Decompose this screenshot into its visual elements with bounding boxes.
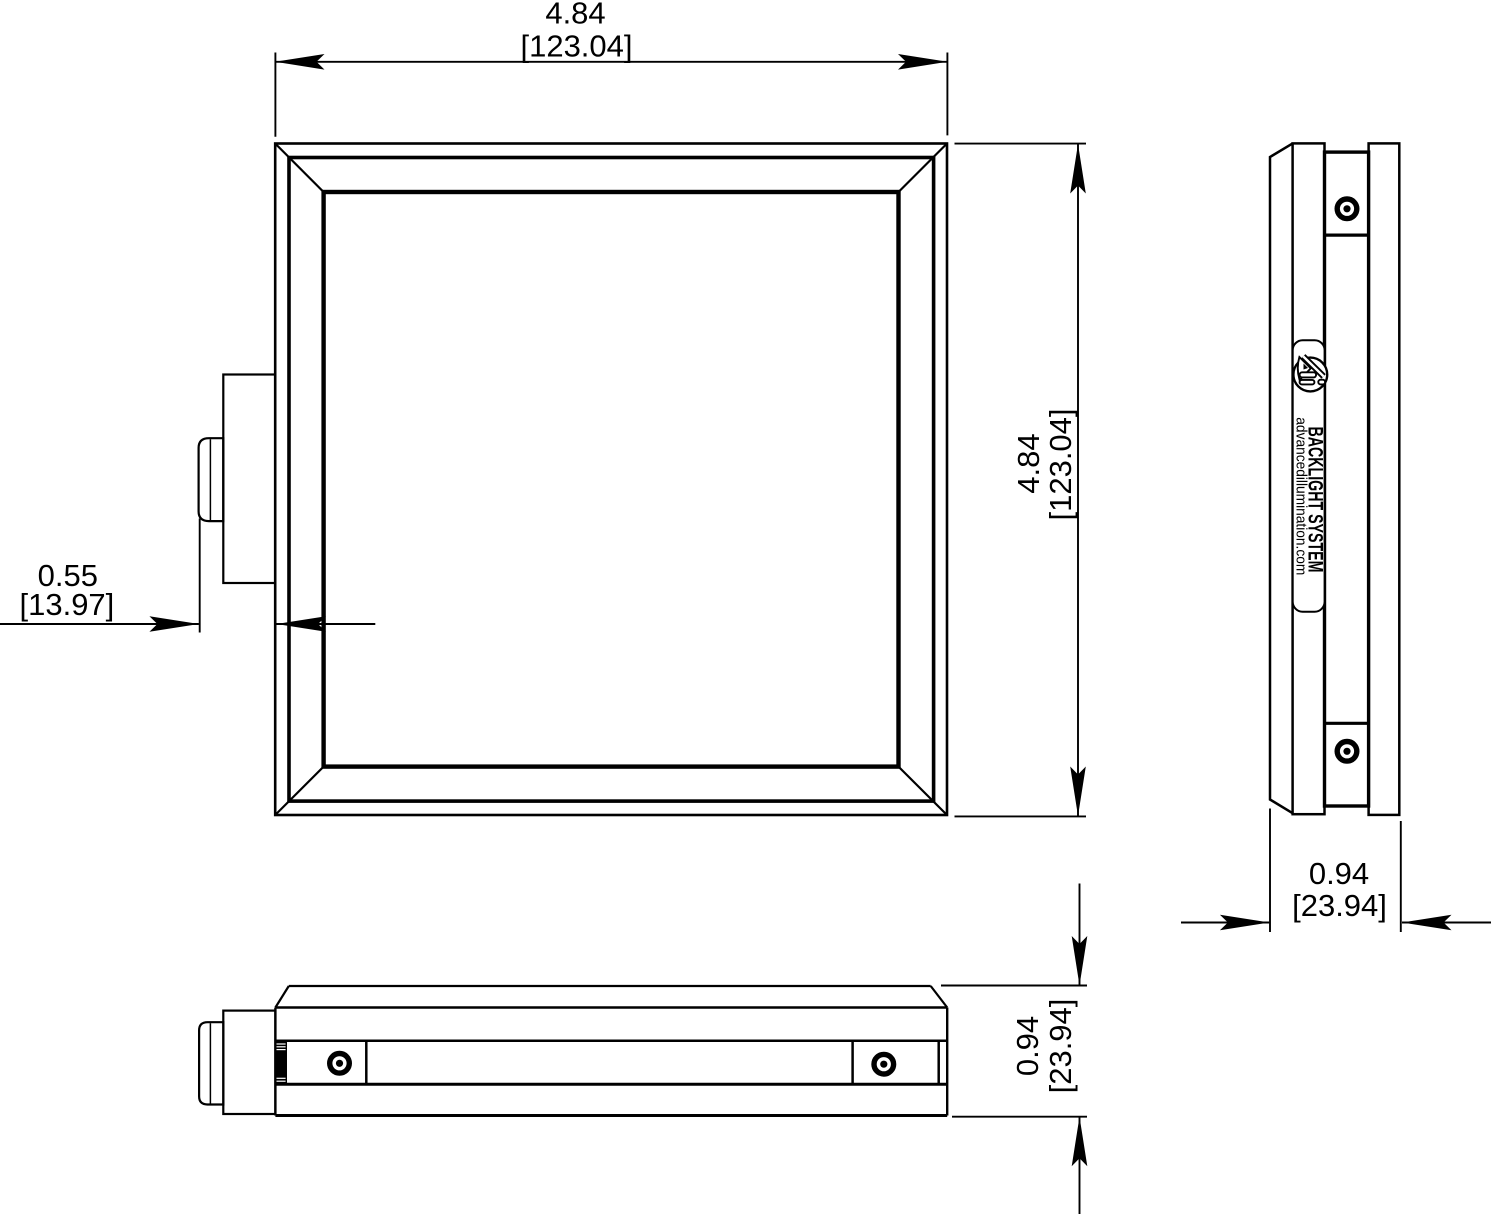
- svg-text:4.84: 4.84: [545, 0, 605, 31]
- svg-text:[123.04]: [123.04]: [520, 29, 632, 64]
- svg-text:0.94: 0.94: [1010, 1016, 1045, 1076]
- svg-text:advancedillumination.com: advancedillumination.com: [1293, 417, 1310, 575]
- svg-text:[13.97]: [13.97]: [19, 587, 114, 622]
- svg-text:[23.94]: [23.94]: [1043, 999, 1078, 1094]
- svg-text:[23.94]: [23.94]: [1292, 888, 1387, 923]
- svg-text:[123.04]: [123.04]: [1043, 408, 1078, 520]
- svg-text:0.94: 0.94: [1309, 856, 1369, 891]
- svg-text:4.84: 4.84: [1011, 433, 1046, 493]
